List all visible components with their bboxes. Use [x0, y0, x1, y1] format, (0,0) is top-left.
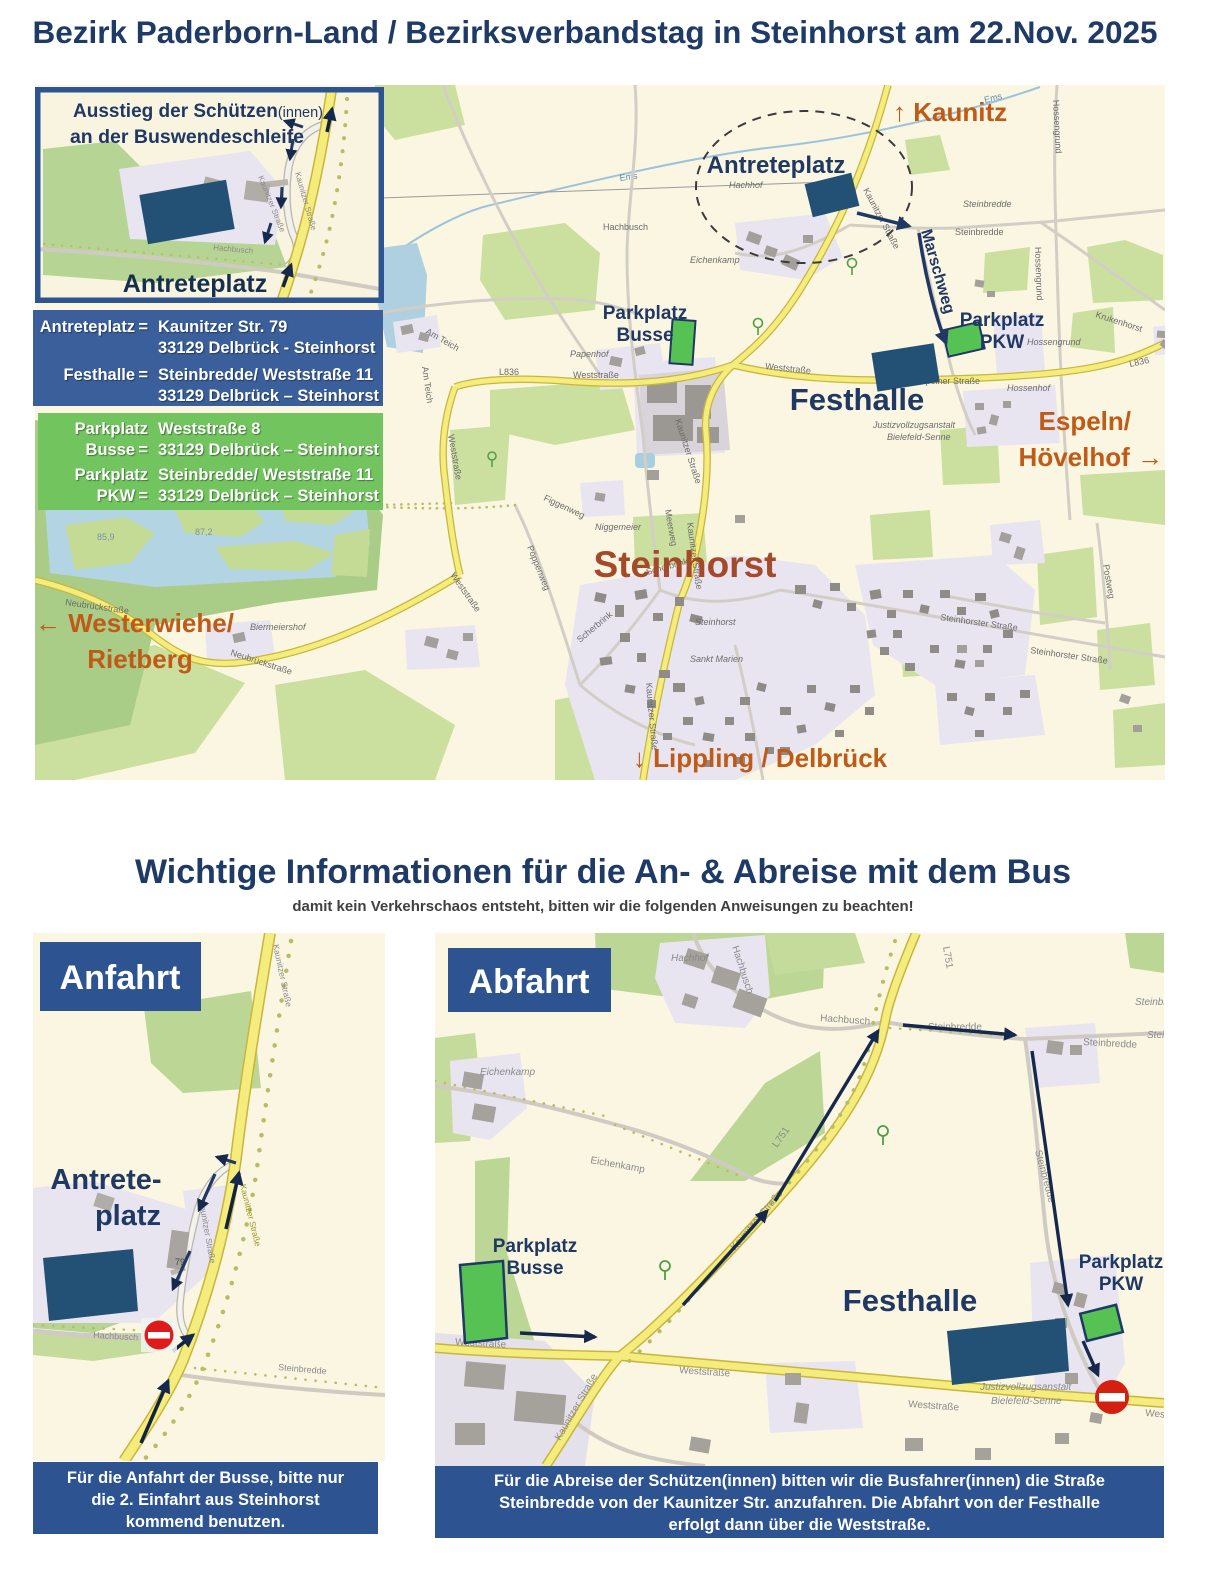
svg-text:Hachhof: Hachhof — [729, 180, 764, 190]
svg-text:87,2: 87,2 — [195, 527, 213, 537]
svg-text:platz: platz — [95, 1200, 161, 1232]
svg-text:Justizvollzugsanstalt: Justizvollzugsanstalt — [979, 1382, 1072, 1393]
svg-text:Weststraße: Weststraße — [573, 370, 619, 380]
svg-text:Parkplatz: Parkplatz — [1079, 1252, 1163, 1273]
svg-text:Eichenkamp: Eichenkamp — [480, 1067, 535, 1078]
svg-text:Abfahrt: Abfahrt — [469, 963, 590, 1001]
svg-text:Antreteplatz: Antreteplatz — [707, 152, 846, 179]
svg-text:Papenhof: Papenhof — [570, 349, 610, 359]
svg-text:Hossenhof: Hossenhof — [1007, 383, 1052, 393]
svg-text:PKW: PKW — [1099, 1274, 1143, 1295]
svg-text:↓ Lippling / Delbrück: ↓ Lippling / Delbrück — [633, 743, 888, 773]
svg-text:an der Buswendeschleife: an der Buswendeschleife — [70, 126, 304, 148]
svg-text:Busse: Busse — [506, 1258, 563, 1279]
svg-text:← Westerwiehe/: ← Westerwiehe/ — [35, 608, 234, 638]
svg-text:Bielefeld-Senne: Bielefeld-Senne — [887, 432, 951, 442]
svg-text:Espeln/: Espeln/ — [1039, 406, 1131, 436]
svg-text:Steinbredde: Steinbredde — [1135, 997, 1164, 1008]
svg-text:Eichenkamp: Eichenkamp — [690, 255, 740, 265]
svg-text:PKW: PKW — [980, 332, 1024, 353]
svg-text:Sankt Marien: Sankt Marien — [690, 654, 743, 664]
svg-text:Hövelhof →: Hövelhof → — [1019, 442, 1163, 472]
svg-text:L836: L836 — [499, 367, 519, 377]
svg-text:Festhalle: Festhalle — [843, 1283, 977, 1318]
svg-text:Bielefeld-Senne: Bielefeld-Senne — [991, 1396, 1062, 1407]
svg-text:Steinbredde: Steinbredde — [955, 227, 1004, 237]
svg-text:Hachhof: Hachhof — [671, 953, 709, 964]
svg-text:Steinhorst: Steinhorst — [695, 617, 736, 627]
svg-text:Ausstieg der Schützen(innen): Ausstieg der Schützen(innen) — [73, 101, 323, 122]
svg-text:Wes: Wes — [1145, 1408, 1164, 1421]
svg-text:Parkplatz: Parkplatz — [960, 310, 1044, 331]
svg-text:Rietberg: Rietberg — [87, 644, 192, 674]
svg-text:Anfahrt: Anfahrt — [60, 959, 181, 997]
svg-text:Steinbredde: Steinbredde — [963, 199, 1012, 209]
svg-text:Steinhorst: Steinhorst — [594, 544, 777, 585]
svg-text:↑ Kaunitz: ↑ Kaunitz — [893, 97, 1007, 127]
svg-text:Steinbr: Steinbr — [1147, 1030, 1164, 1041]
svg-text:Festhalle: Festhalle — [790, 382, 924, 417]
svg-text:Hossengrund: Hossengrund — [1033, 247, 1045, 301]
svg-text:Parkplatz: Parkplatz — [493, 1236, 577, 1257]
svg-text:Hossengrund: Hossengrund — [1027, 337, 1082, 347]
svg-text:85,9: 85,9 — [97, 532, 115, 542]
svg-text:Justizvollzugsanstalt: Justizvollzugsanstalt — [872, 420, 956, 430]
svg-text:Antreteplatz: Antreteplatz — [123, 270, 267, 298]
svg-text:Antrete-: Antrete- — [50, 1164, 161, 1196]
svg-text:Biermeiershof: Biermeiershof — [250, 622, 307, 632]
svg-text:Hachbusch: Hachbusch — [603, 222, 648, 232]
svg-text:Niggemeier: Niggemeier — [595, 522, 642, 532]
svg-text:Parkplatz: Parkplatz — [603, 303, 687, 324]
svg-text:Busse: Busse — [616, 325, 673, 346]
